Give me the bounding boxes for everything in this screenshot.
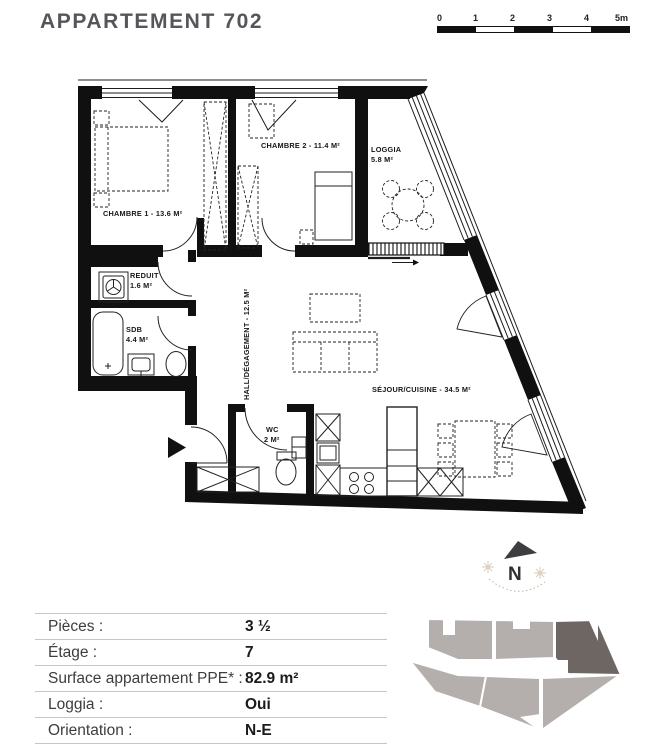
sun-icon (534, 567, 546, 579)
details-table: Pièces : 3 ½ Étage : 7 Surface apparteme… (35, 613, 387, 744)
row-value: 3 ½ (245, 618, 387, 636)
table-row: Étage : 7 (35, 639, 387, 665)
compass: N (482, 541, 546, 591)
label-wc-area: 2 M² (264, 435, 280, 444)
door-sdb (158, 316, 192, 350)
interior-walls (91, 99, 368, 495)
sofa (293, 332, 377, 372)
row-label: Orientation : (35, 722, 245, 740)
table-row: Orientation : N-E (35, 717, 387, 744)
kitchen-units (316, 407, 463, 496)
door-chambre1 (163, 217, 197, 251)
label-sejour: SÉJOUR/CUISINE - 34.5 M² (372, 385, 471, 394)
footprint-unit (542, 675, 620, 730)
dining-table (438, 421, 512, 477)
door-sejour-upper (457, 296, 502, 337)
floorplan-page: { "title": "APPARTEMENT 702", "scale_bar… (0, 0, 662, 750)
label-reduit-area: 1.6 M² (130, 281, 152, 290)
furniture (93, 102, 512, 496)
row-value: N-E (245, 722, 387, 740)
window-box-chambre2 (249, 104, 274, 138)
label-sdb: SDB (126, 325, 142, 334)
loggia-sill (368, 243, 444, 255)
door-entry (191, 427, 227, 463)
table-row: Pièces : 3 ½ (35, 613, 387, 639)
bed-chambre1 (94, 111, 168, 207)
bathtub (93, 312, 123, 375)
label-loggia-area: 5.8 M² (371, 155, 393, 164)
window-swing-chambre1 (139, 100, 183, 122)
row-value: Oui (245, 696, 387, 714)
row-label: Étage : (35, 644, 245, 662)
coffee-table (310, 294, 360, 322)
building-footprint (410, 619, 621, 731)
stove-burners (350, 473, 374, 494)
entry-arrow-icon (168, 437, 186, 458)
wardrobe-chambre1 (204, 102, 226, 250)
sink-wc (292, 437, 306, 458)
label-chambre1: CHAMBRE 1 - 13.6 M² (103, 209, 183, 218)
north-label: N (508, 564, 522, 585)
washing-machine-icon (99, 272, 128, 302)
row-value: 7 (245, 644, 387, 662)
toilet-wc (276, 452, 296, 485)
row-label: Surface appartement PPE* : (35, 670, 245, 688)
room-labels: CHAMBRE 1 - 13.6 M² CHAMBRE 2 - 11.4 M² … (103, 141, 471, 444)
table-row: Surface appartement PPE* : 82.9 m² (35, 665, 387, 691)
sun-icon (482, 561, 494, 573)
wardrobe-chambre2 (238, 166, 258, 248)
door-chambre2 (262, 218, 295, 251)
label-reduit: REDUIT (130, 271, 159, 280)
loggia-table-set (383, 181, 434, 230)
door-reduit (158, 262, 192, 296)
north-arrow-icon (504, 541, 537, 559)
row-label: Pièces : (35, 618, 245, 636)
label-wc: WC (266, 425, 279, 434)
row-label: Loggia : (35, 696, 245, 714)
label-sdb-area: 4.4 M² (126, 335, 148, 344)
label-hall: HALL/DÉGAGEMENT - 12.5 M² (242, 288, 251, 400)
table-row: Loggia : Oui (35, 691, 387, 717)
footprint-unit (428, 619, 493, 660)
bed-chambre2 (300, 172, 352, 244)
label-loggia: LOGGIA (371, 145, 402, 154)
toilet-sdb (166, 352, 186, 377)
sliding-door-arrow-icon (413, 260, 419, 266)
sink-sdb (128, 354, 154, 376)
row-value: 82.9 m² (245, 670, 387, 688)
label-chambre2: CHAMBRE 2 - 11.4 M² (261, 141, 340, 150)
